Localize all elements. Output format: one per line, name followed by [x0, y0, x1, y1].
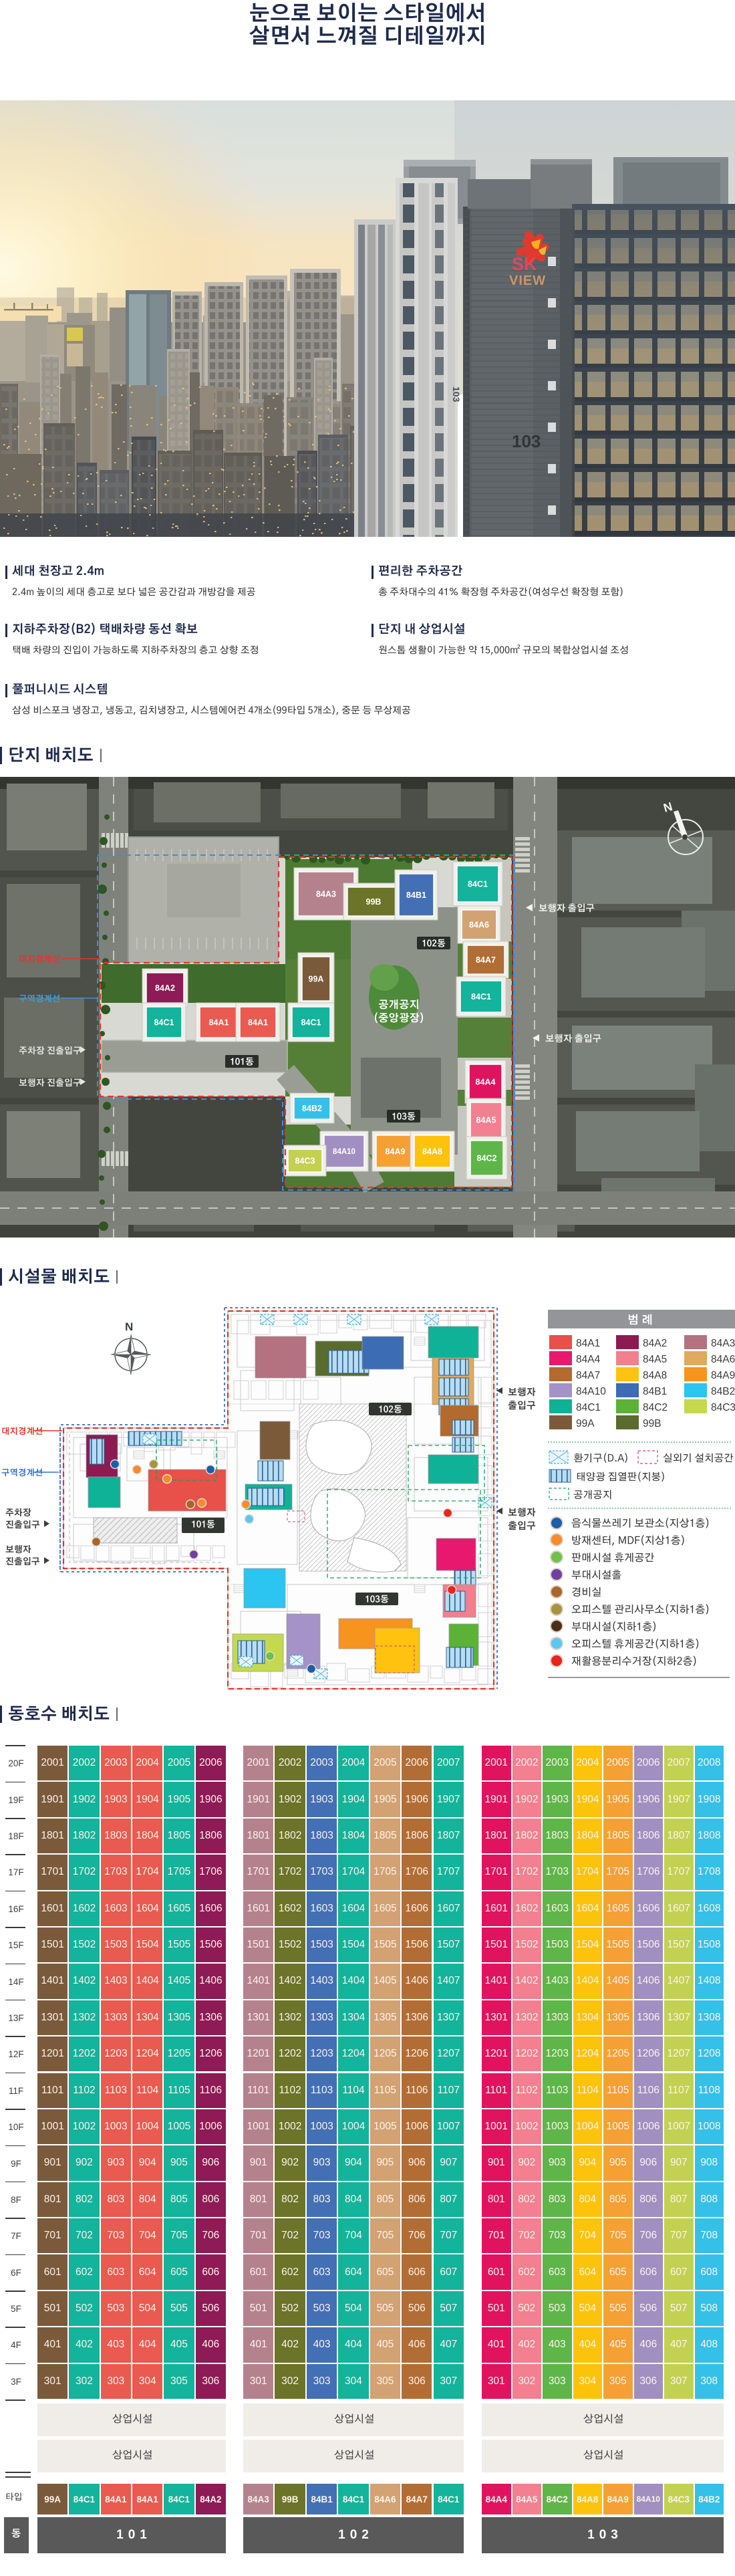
svg-text:84A7: 84A7 [476, 955, 496, 965]
svg-text:N: N [125, 1320, 133, 1333]
svg-text:103: 103 [451, 386, 462, 402]
svg-text:99A: 99A [576, 1418, 595, 1429]
svg-text:84A9: 84A9 [386, 1147, 406, 1157]
svg-text:84A3: 84A3 [316, 890, 336, 899]
svg-text:84A4: 84A4 [476, 1078, 496, 1087]
svg-text:84B2: 84B2 [711, 1386, 735, 1397]
svg-text:84B2: 84B2 [302, 1104, 322, 1113]
svg-text:84A8: 84A8 [643, 1370, 667, 1381]
svg-text:99B: 99B [643, 1418, 661, 1429]
svg-text:VIEW: VIEW [509, 273, 546, 288]
svg-text:84B1: 84B1 [643, 1386, 667, 1397]
svg-text:84A8: 84A8 [422, 1147, 442, 1157]
svg-text:SK: SK [512, 254, 537, 274]
svg-text:84B1: 84B1 [406, 891, 426, 900]
svg-text:84A3: 84A3 [711, 1338, 735, 1349]
svg-text:84A4: 84A4 [576, 1354, 601, 1365]
svg-text:84A2: 84A2 [155, 983, 175, 993]
svg-text:84C3: 84C3 [295, 1157, 315, 1166]
svg-text:84C1: 84C1 [471, 992, 491, 1002]
svg-text:84A10: 84A10 [576, 1386, 606, 1397]
svg-text:84C1: 84C1 [468, 880, 488, 889]
svg-text:84A2: 84A2 [643, 1338, 667, 1349]
svg-text:84C2: 84C2 [477, 1154, 497, 1163]
svg-text:84A1: 84A1 [209, 1018, 229, 1028]
svg-text:84A6: 84A6 [711, 1354, 735, 1365]
svg-text:84A6: 84A6 [469, 921, 489, 930]
svg-text:84C1: 84C1 [576, 1402, 601, 1413]
svg-text:99B: 99B [366, 897, 382, 907]
svg-text:84C1: 84C1 [154, 1018, 174, 1028]
svg-text:84C2: 84C2 [643, 1402, 668, 1413]
svg-text:84A5: 84A5 [476, 1116, 496, 1125]
svg-text:84C1: 84C1 [301, 1018, 321, 1028]
svg-text:84A9: 84A9 [711, 1370, 735, 1381]
svg-text:99A: 99A [309, 975, 324, 984]
svg-text:103: 103 [512, 431, 541, 451]
svg-text:84A7: 84A7 [576, 1370, 600, 1381]
svg-text:84A5: 84A5 [643, 1354, 667, 1365]
svg-text:84C3: 84C3 [711, 1402, 735, 1413]
svg-text:84A1: 84A1 [248, 1018, 268, 1028]
svg-text:84A1: 84A1 [576, 1338, 600, 1349]
svg-text:84A10: 84A10 [333, 1148, 355, 1156]
